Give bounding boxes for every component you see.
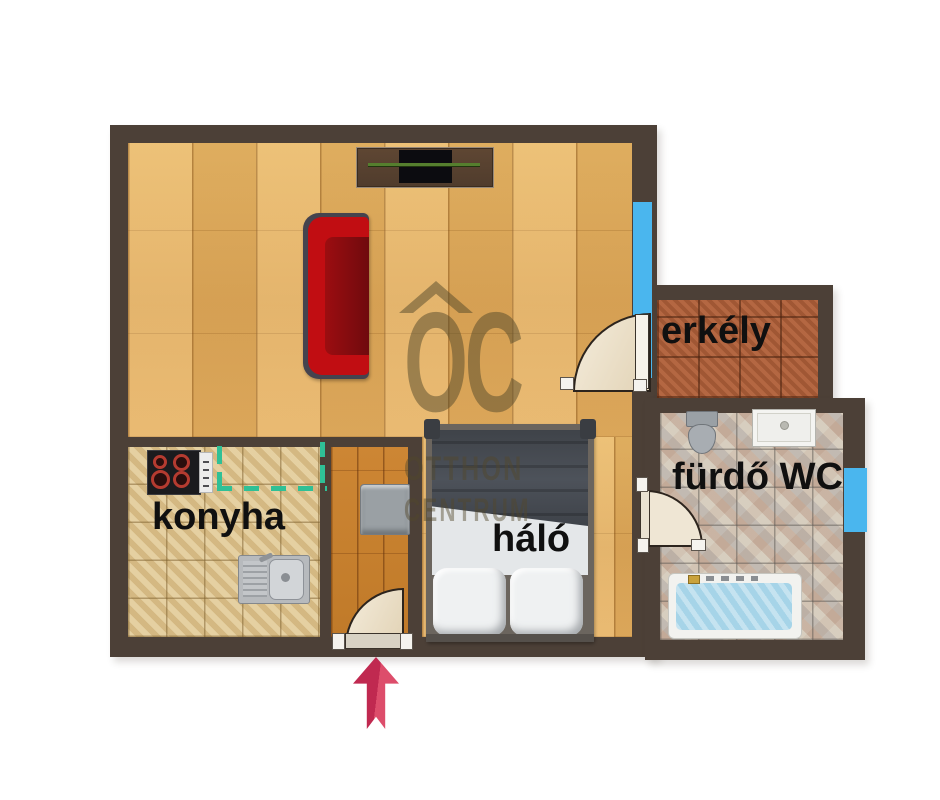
balcony-door-jamb-left (560, 377, 574, 390)
kitchen-opening-dash-left (217, 442, 222, 490)
floor-plan-canvas: konyha háló fürdő WC erkély OC OTTHON CE… (0, 0, 940, 800)
stove-burner-2 (173, 454, 190, 471)
tv-console-shelf-line (368, 163, 480, 166)
sofa-seat (325, 237, 369, 355)
entrance-arrow-icon (353, 657, 399, 729)
stove-knob-panel (199, 452, 213, 493)
bathroom-door-leaf (640, 490, 650, 545)
kitchen-sink-drainboard (243, 561, 267, 597)
bathroom-door-jamb-stop (691, 539, 706, 551)
bathtub-water (676, 583, 792, 630)
kitchen-opening-dash-bottom (217, 486, 327, 491)
watermark-line1: OTTHON (404, 452, 524, 486)
bathroom-window (844, 468, 867, 532)
entrance-door-jamb-left (332, 633, 345, 650)
bathroom-door-jamb-top (636, 477, 648, 492)
bedroom-label: háló (492, 520, 570, 558)
bathroom-label: fürdő WC (672, 458, 843, 496)
bathroom-sink-drain (780, 421, 789, 430)
tv-screen (399, 150, 452, 183)
stove-burner-4 (173, 471, 190, 488)
bathtub-faucet (688, 575, 700, 584)
balcony-door-jamb-right (633, 379, 647, 392)
bathtub-controls (706, 576, 758, 581)
entrance-door-leaf (345, 633, 402, 649)
balcony-door-leaf (635, 314, 649, 389)
bed-pillow-left (433, 568, 506, 636)
kitchen-label: konyha (152, 498, 285, 536)
bed-pillow-right (510, 568, 583, 636)
watermark-logo: OC (404, 292, 521, 434)
bed-foot-rail (426, 634, 594, 642)
stove-burner-3 (151, 470, 170, 489)
kitchen-opening-dash-right (320, 442, 325, 483)
bed-headboard-post-right (580, 419, 596, 439)
hallway-cabinet (360, 484, 410, 535)
balcony-label: erkély (661, 312, 771, 350)
entrance-door-jamb-right (400, 633, 413, 650)
bathroom-door-jamb-bottom (637, 538, 649, 553)
stove-burner-1 (153, 455, 167, 469)
kitchen-sink-drain (281, 573, 290, 582)
